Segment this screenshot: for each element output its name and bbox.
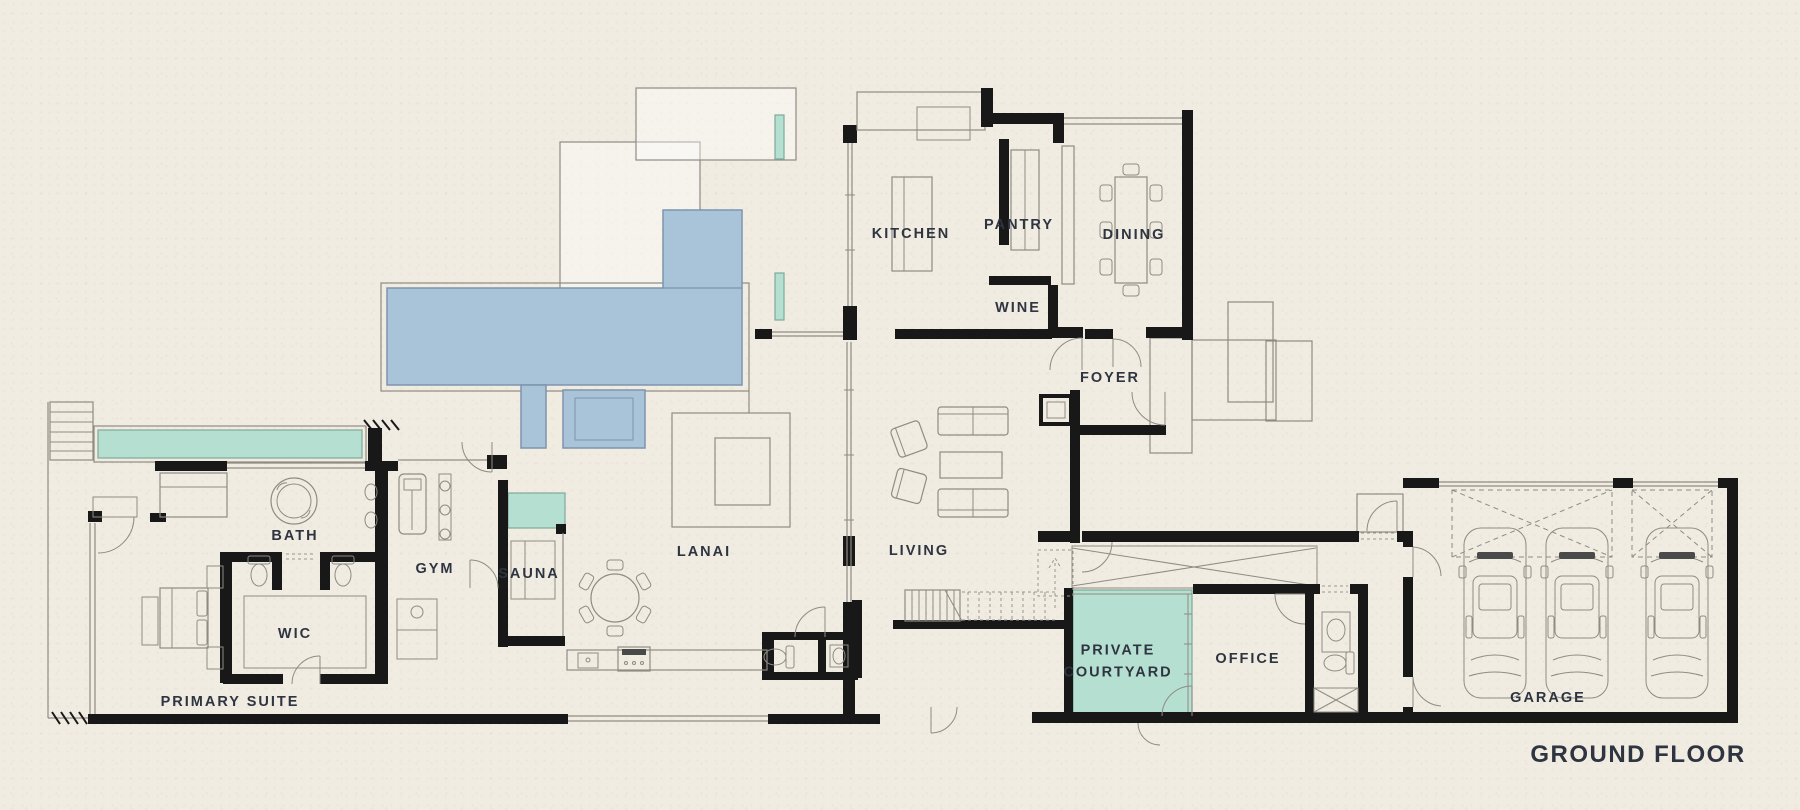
room-label-garage: GARAGE [1510,690,1586,706]
room-label-wine: WINE [995,300,1041,316]
room-label-bath: BATH [271,528,318,544]
room-label-wic: WIC [278,626,312,642]
room-label-private-courtyard: PRIVATE COURTYARD [1038,640,1198,684]
room-label-office: OFFICE [1215,651,1280,667]
garage-door-swing-zones [1452,490,1712,557]
car-3 [1641,528,1713,698]
car-2 [1541,528,1613,698]
room-label-gym: GYM [415,561,454,577]
car-1 [1459,528,1531,698]
floor-title: GROUND FLOOR [1530,741,1745,769]
walls [88,88,1738,724]
room-label-pantry: PANTRY [984,217,1054,233]
room-label-foyer: FOYER [1080,370,1140,386]
room-label-living: LIVING [889,543,949,559]
terrace-steps [50,402,93,460]
water-slot-south [775,273,784,320]
lap-pool [94,426,366,462]
room-label-lanai: LANAI [677,544,731,560]
pool-lounger [521,385,546,448]
water-slot-north [775,115,784,159]
room-label-sauna: SAUNA [498,566,560,582]
plunge-pool [508,493,565,528]
room-label-kitchen: KITCHEN [872,226,950,242]
staircase [905,550,1073,621]
room-label-dining: DINING [1103,227,1166,243]
floor-plan-drawing [0,0,1800,810]
floor-plan-canvas: KITCHEN PANTRY WINE DINING FOYER BATH GY… [0,0,1800,810]
deck-outlines [48,88,1403,718]
room-label-primary-suite: PRIMARY SUITE [161,694,300,710]
